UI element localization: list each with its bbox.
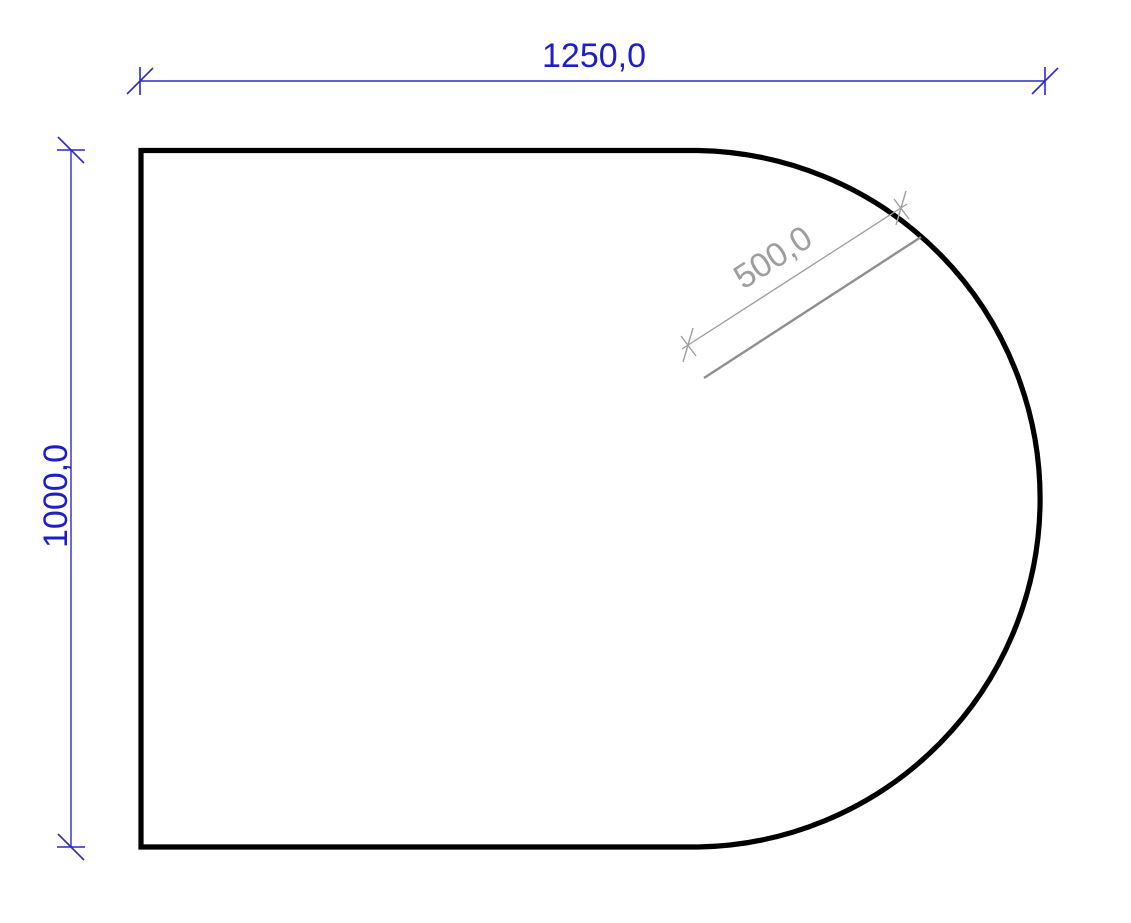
- width-dimension: 1250,0: [127, 37, 1058, 95]
- dimension-tick: [681, 328, 696, 362]
- height-dimension-label: 1000,0: [37, 444, 75, 548]
- height-dimension: 1000,0: [37, 137, 85, 860]
- drawing-canvas: 1250,0 1000,0: [0, 0, 1131, 923]
- radius-dimension: 500,0: [681, 191, 921, 378]
- width-dimension-label: 1250,0: [542, 37, 646, 75]
- radius-dimension-label: 500,0: [727, 219, 819, 297]
- technical-drawing-svg: 1250,0 1000,0: [0, 0, 1131, 923]
- plate-outline-shape: [141, 151, 1040, 848]
